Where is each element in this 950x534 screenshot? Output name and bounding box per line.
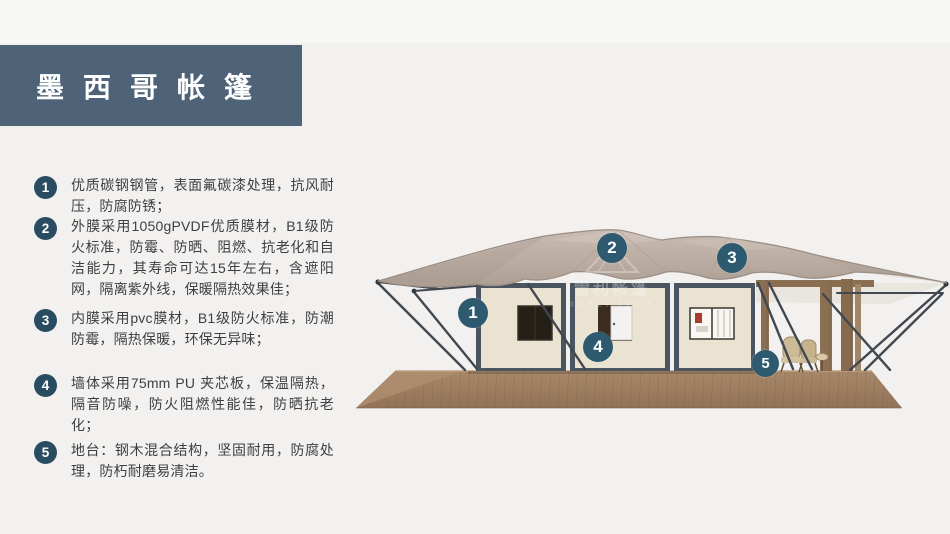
feature-item-2: 2 外膜采用1050gPVDF优质膜材，B1级防火标准，防霉、防晒、阻燃、抗老化…	[34, 216, 334, 300]
number-badge-2: 2	[34, 217, 57, 240]
number-badge-3: 3	[34, 309, 57, 332]
callout-marker-3: 3	[717, 243, 747, 273]
callout-marker-5: 5	[752, 350, 779, 377]
page-title: 墨西哥帐篷	[0, 66, 271, 106]
number-badge-5: 5	[34, 441, 57, 464]
feature-item-5: 5 地台：钢木混合结构，坚固耐用，防腐处理，防朽耐磨易清洁。	[34, 440, 334, 482]
callout-marker-4: 4	[583, 332, 613, 362]
callout-marker-2: 2	[597, 233, 627, 263]
feature-item-3: 3 内膜采用pvc膜材，B1级防火标准，防潮防霉，隔热保暖，环保无异味；	[34, 308, 334, 350]
svg-text:雪利帐篷: 雪利帐篷	[574, 279, 650, 298]
callout-marker-1: 1	[458, 298, 488, 328]
deck-platform	[356, 371, 902, 408]
canopy-roof	[378, 230, 947, 287]
feature-item-1: 1 优质碳钢钢管，表面氟碳漆处理，抗风耐压，防腐防锈；	[34, 175, 334, 217]
feature-text-3: 内膜采用pvc膜材，B1级防火标准，防潮防霉，隔热保暖，环保无异味；	[71, 308, 334, 350]
number-badge-4: 4	[34, 374, 57, 397]
top-strip	[0, 0, 950, 43]
feature-text-5: 地台：钢木混合结构，坚固耐用，防腐处理，防朽耐磨易清洁。	[71, 440, 334, 482]
feature-text-2: 外膜采用1050gPVDF优质膜材，B1级防火标准，防霉、防晒、阻燃、抗老化和自…	[71, 216, 334, 300]
feature-item-4: 4 墙体采用75mm PU 夹芯板，保温隔热，隔音防噪，防火阻燃性能佳，防晒抗老…	[34, 373, 334, 436]
number-badge-1: 1	[34, 176, 57, 199]
tent-illustration: 雪利帐篷 XUELI TENT	[350, 210, 950, 430]
svg-text:XUELI TENT: XUELI TENT	[569, 300, 655, 309]
title-bar: 墨西哥帐篷	[0, 45, 302, 126]
feature-text-4: 墙体采用75mm PU 夹芯板，保温隔热，隔音防噪，防火阻燃性能佳，防晒抗老化；	[71, 373, 334, 436]
feature-text-1: 优质碳钢钢管，表面氟碳漆处理，抗风耐压，防腐防锈；	[71, 175, 334, 217]
tent-figure: 雪利帐篷 XUELI TENT 1 2 3 4 5	[350, 210, 950, 430]
